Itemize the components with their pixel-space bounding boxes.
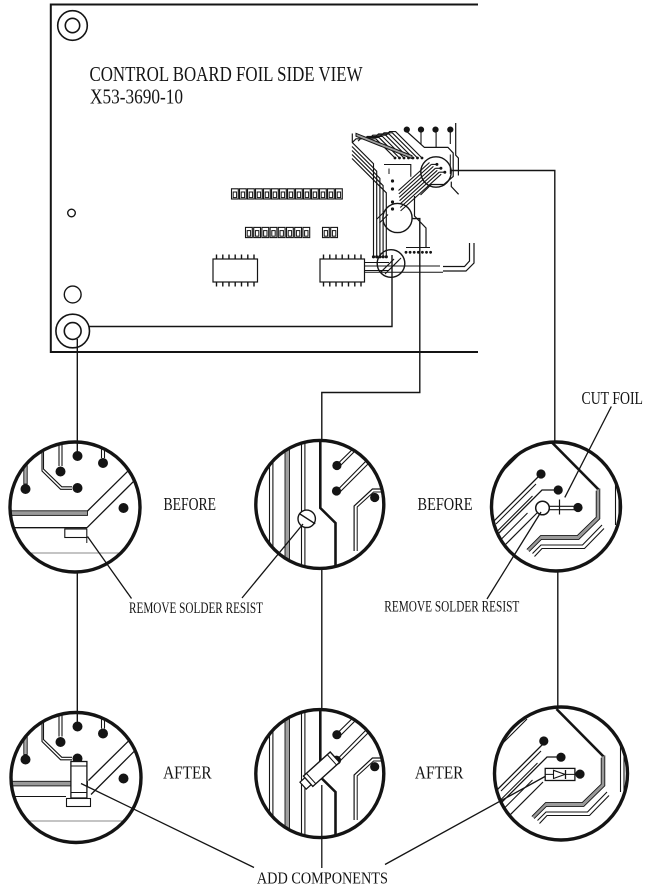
svg-text:CUT FOIL: CUT FOIL <box>582 388 644 408</box>
svg-text:ADD COMPONENTS: ADD COMPONENTS <box>257 869 388 888</box>
svg-text:BEFORE: BEFORE <box>164 494 217 514</box>
svg-text:REMOVE SOLDER RESIST: REMOVE SOLDER RESIST <box>129 600 263 617</box>
svg-text:REMOVE SOLDER RESIST: REMOVE SOLDER RESIST <box>384 599 519 616</box>
svg-text:X53-3690-10: X53-3690-10 <box>90 85 183 109</box>
svg-text:BEFORE: BEFORE <box>418 494 473 514</box>
svg-text:AFTER: AFTER <box>163 763 212 783</box>
svg-text:AFTER: AFTER <box>415 763 464 783</box>
svg-text:CONTROL BOARD FOIL SIDE VIEW: CONTROL BOARD FOIL SIDE VIEW <box>90 62 364 86</box>
